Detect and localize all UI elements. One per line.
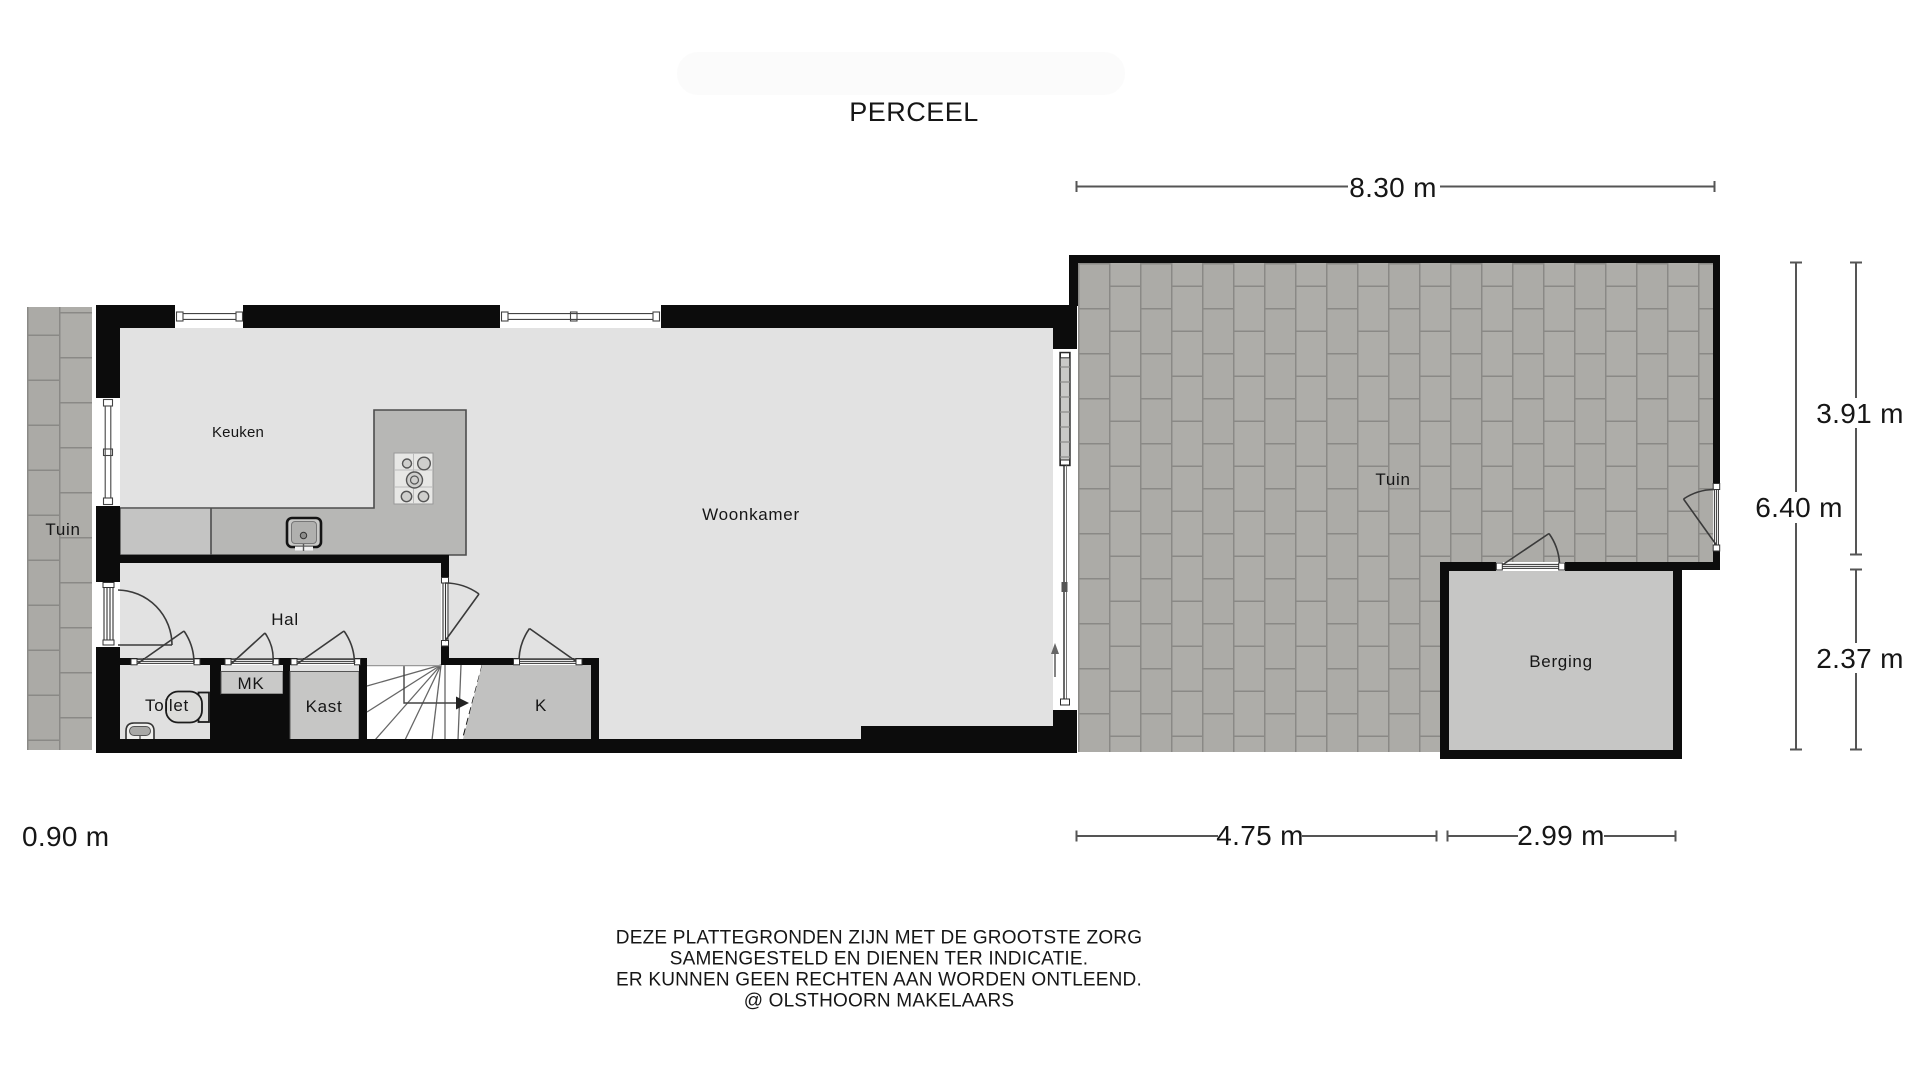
svg-text:Kast: Kast (306, 697, 343, 716)
svg-text:MK: MK (238, 674, 265, 693)
svg-text:Tuin: Tuin (1375, 470, 1410, 489)
svg-text:6.40 m: 6.40 m (1755, 492, 1842, 523)
svg-text:2.99 m: 2.99 m (1517, 820, 1604, 851)
svg-text:4.75 m: 4.75 m (1216, 820, 1303, 851)
svg-text:ER KUNNEN GEEN RECHTEN AAN WOR: ER KUNNEN GEEN RECHTEN AAN WORDEN ONTLEE… (616, 970, 1142, 991)
svg-text:SAMENGESTELD EN DIENEN TER IND: SAMENGESTELD EN DIENEN TER INDICATIE. (670, 949, 1088, 970)
svg-text:@ OLSTHOORN MAKELAARS: @ OLSTHOORN MAKELAARS (744, 991, 1015, 1012)
svg-text:3.91 m: 3.91 m (1816, 398, 1903, 429)
svg-text:Keuken: Keuken (212, 424, 264, 441)
svg-text:2.37 m: 2.37 m (1816, 643, 1903, 674)
svg-text:Berging: Berging (1529, 652, 1593, 671)
svg-text:Hal: Hal (271, 610, 299, 629)
svg-text:DEZE PLATTEGRONDEN ZIJN MET DE: DEZE PLATTEGRONDEN ZIJN MET DE GROOTSTE … (616, 928, 1142, 949)
svg-text:K: K (535, 696, 547, 715)
svg-text:Toilet: Toilet (145, 696, 189, 715)
svg-text:PERCEEL: PERCEEL (849, 97, 979, 127)
svg-text:Woonkamer: Woonkamer (702, 505, 800, 524)
svg-text:8.30 m: 8.30 m (1349, 172, 1436, 203)
svg-text:0.90 m: 0.90 m (22, 821, 109, 852)
svg-text:Tuin: Tuin (45, 520, 80, 539)
